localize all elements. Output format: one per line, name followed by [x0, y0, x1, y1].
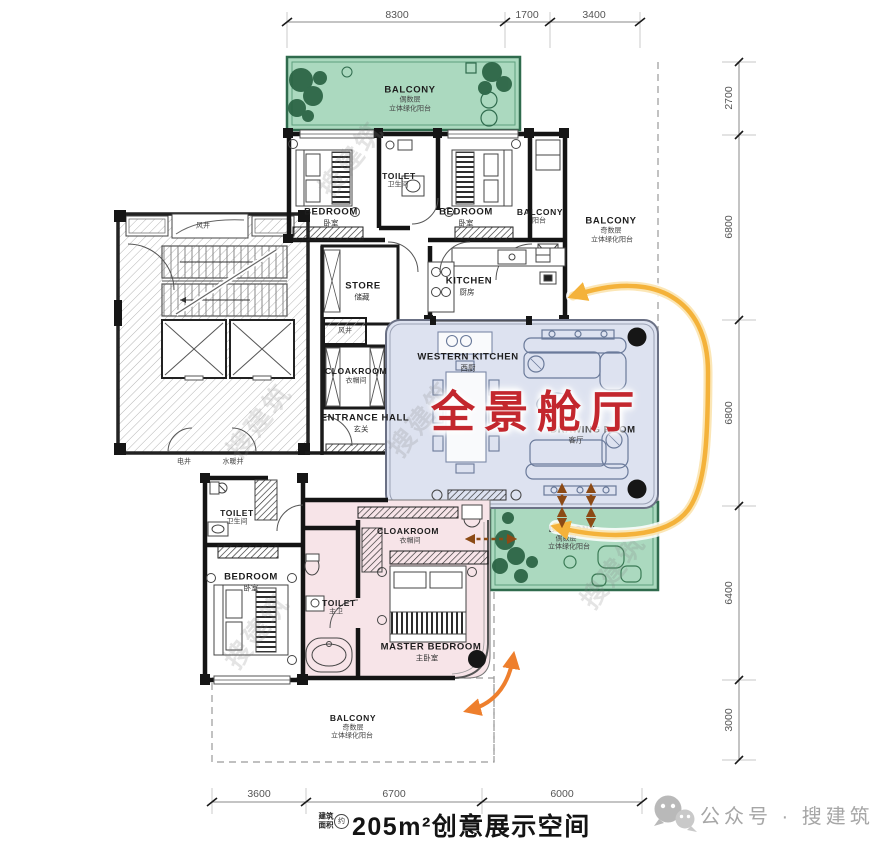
- dim-top-1700: 1700: [515, 9, 538, 21]
- room-sublabel: 衣帽间: [400, 538, 421, 545]
- stairs: [162, 246, 287, 316]
- room-sublabel: 储藏: [355, 293, 370, 301]
- room-sublabel: 主卫: [329, 609, 343, 616]
- dim-right-6800b: 6800: [723, 401, 735, 424]
- room-label-plumb-shaft: 水暖井: [223, 459, 244, 466]
- room-label-toilet-b: TOILET: [220, 509, 254, 518]
- room-label-air-shaft-a: 风井: [196, 223, 210, 230]
- room-sublabel: 立体绿化阳台: [548, 544, 590, 551]
- room-label-balcony-top: BALCONY: [384, 85, 435, 95]
- room-sublabel: 奇数层: [343, 725, 364, 732]
- room-sublabel: 玄关: [354, 425, 369, 433]
- room-label-bedroom-b: BEDROOM: [439, 207, 493, 217]
- dim-bottom-6700: 6700: [382, 788, 405, 800]
- room-label-air-shaft-b: 风井: [338, 328, 352, 335]
- room-sublabel: 西厨: [461, 364, 476, 372]
- room-label-bedroom-c: BEDROOM: [224, 572, 278, 582]
- air-shaft: [172, 214, 248, 238]
- room-sublabel: 立体绿化阳台: [389, 106, 431, 113]
- room-sublabel: 偶数层: [556, 536, 577, 543]
- master-bed: [378, 566, 477, 642]
- room-label-western-kitchen: WESTERN KITCHEN: [417, 352, 518, 362]
- room-sublabel: 阳台: [532, 218, 546, 225]
- room-label-cloakroom-a: CLOAKROOM: [325, 367, 387, 376]
- wechat-account-label: 公众号 · 搜建筑: [700, 800, 874, 829]
- dim-bottom-3600: 3600: [247, 788, 270, 800]
- room-sublabel: 偶数层: [400, 97, 421, 104]
- room-label-balcony-bottom: BALCONY: [330, 714, 376, 723]
- room-sublabel: 厨房: [460, 288, 475, 296]
- room-label-kitchen: KITCHEN: [446, 276, 492, 286]
- dim-right-6400: 6400: [723, 581, 735, 604]
- room-label-toilet-a: TOILET: [382, 172, 416, 181]
- room-sublabel: 卧室: [324, 219, 339, 227]
- room-sublabel: 奇数层: [601, 228, 622, 235]
- room-sublabel: 立体绿化阳台: [331, 733, 373, 740]
- room-sublabel: 卫生间: [227, 519, 248, 526]
- room-label-balcony-small: BALCONY: [517, 208, 563, 217]
- room-label-entrance-hall: ENTRANCE HALL: [321, 413, 410, 423]
- room-sublabel: 卧室: [244, 584, 259, 592]
- highlight-annotation: 全景舱厅: [431, 376, 643, 440]
- room-label-elec-shaft: 电井: [177, 459, 191, 466]
- wechat-icon: [654, 796, 697, 833]
- room-sublabel: 衣帽间: [346, 378, 367, 385]
- room-label-bedroom-a: BEDROOM: [304, 207, 358, 217]
- approx-circle: 约: [334, 814, 349, 829]
- dim-top-3400: 3400: [582, 9, 605, 21]
- room-sublabel: 卫生间: [388, 182, 409, 189]
- bed-b: [445, 140, 521, 217]
- dim-right-6800a: 6800: [723, 215, 735, 238]
- dim-right-3000: 3000: [723, 708, 735, 731]
- floorplan-canvas: 搜建筑 搜建筑 搜建筑 搜建筑 搜建筑 8300 1700 3400 2700 …: [0, 0, 894, 848]
- room-label-balcony-green-b: BALCONY: [549, 525, 595, 534]
- room-sublabel: 卧室: [459, 219, 474, 227]
- room-label-cloakroom-b: CLOAKROOM: [377, 527, 439, 536]
- room-label-master-bedroom: MASTER BEDROOM: [381, 642, 482, 652]
- area-label-line1: 建筑: [319, 812, 334, 820]
- room-sublabel: 立体绿化阳台: [591, 237, 633, 244]
- dim-right-2700: 2700: [723, 86, 735, 109]
- page-title: 205m²创意展示空间: [352, 807, 591, 843]
- area-label-line2: 面积: [319, 821, 334, 829]
- room-label-toilet-master: TOILET: [322, 599, 356, 608]
- dim-top-8300: 8300: [385, 9, 408, 21]
- room-label-store: STORE: [345, 281, 381, 291]
- dim-bottom-6000: 6000: [550, 788, 573, 800]
- room-label-balcony-right: BALCONY: [585, 216, 636, 226]
- room-sublabel: 主卧室: [416, 654, 439, 662]
